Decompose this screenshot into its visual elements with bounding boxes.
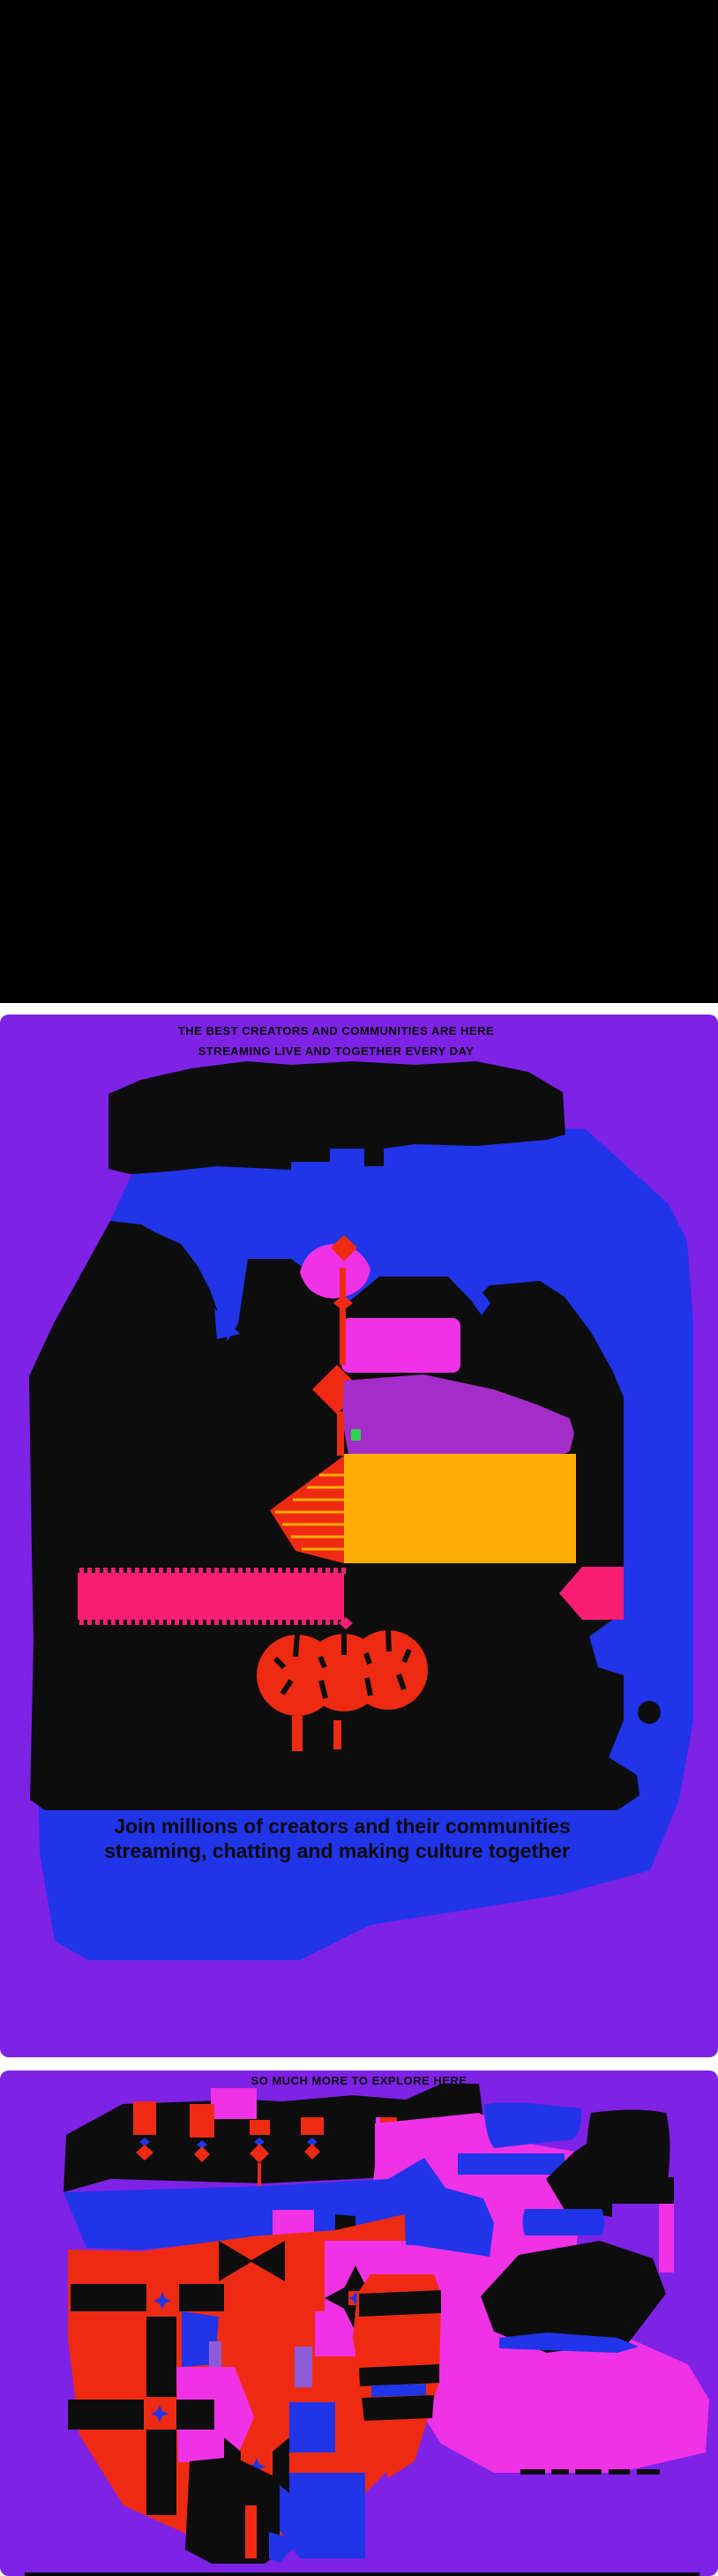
svg-text:SO MUCH MORE TO EXPLORE HERE: SO MUCH MORE TO EXPLORE HERE (251, 2074, 467, 2087)
svg-text:Join millions of creators and: Join millions of creators and their comm… (114, 1815, 571, 1838)
svg-text:STREAMING LIVE AND TOGETHER EV: STREAMING LIVE AND TOGETHER EVERY DAY (198, 1045, 475, 1058)
svg-text:streaming, chatting and making: streaming, chatting and making culture t… (104, 1839, 570, 1862)
svg-text:THE BEST CREATORS AND COMMUNIT: THE BEST CREATORS AND COMMUNITIES ARE HE… (178, 1024, 494, 1037)
